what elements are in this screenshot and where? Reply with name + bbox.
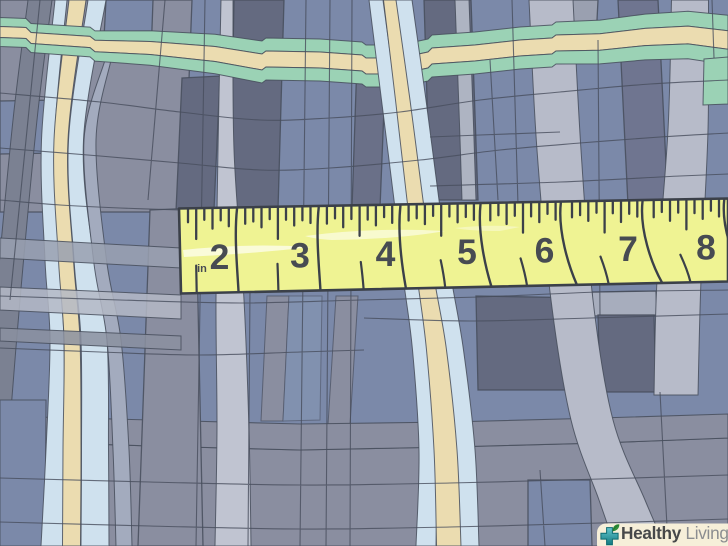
svg-text:in: in bbox=[197, 263, 207, 275]
svg-text:5: 5 bbox=[457, 232, 477, 272]
svg-text:6: 6 bbox=[535, 231, 555, 271]
svg-text:7: 7 bbox=[618, 229, 638, 269]
svg-text:Healthy Living: Healthy Living bbox=[621, 523, 728, 543]
svg-text:2: 2 bbox=[210, 237, 230, 277]
svg-text:4: 4 bbox=[376, 234, 396, 274]
svg-text:8: 8 bbox=[696, 228, 716, 268]
svg-text:3: 3 bbox=[290, 236, 310, 276]
